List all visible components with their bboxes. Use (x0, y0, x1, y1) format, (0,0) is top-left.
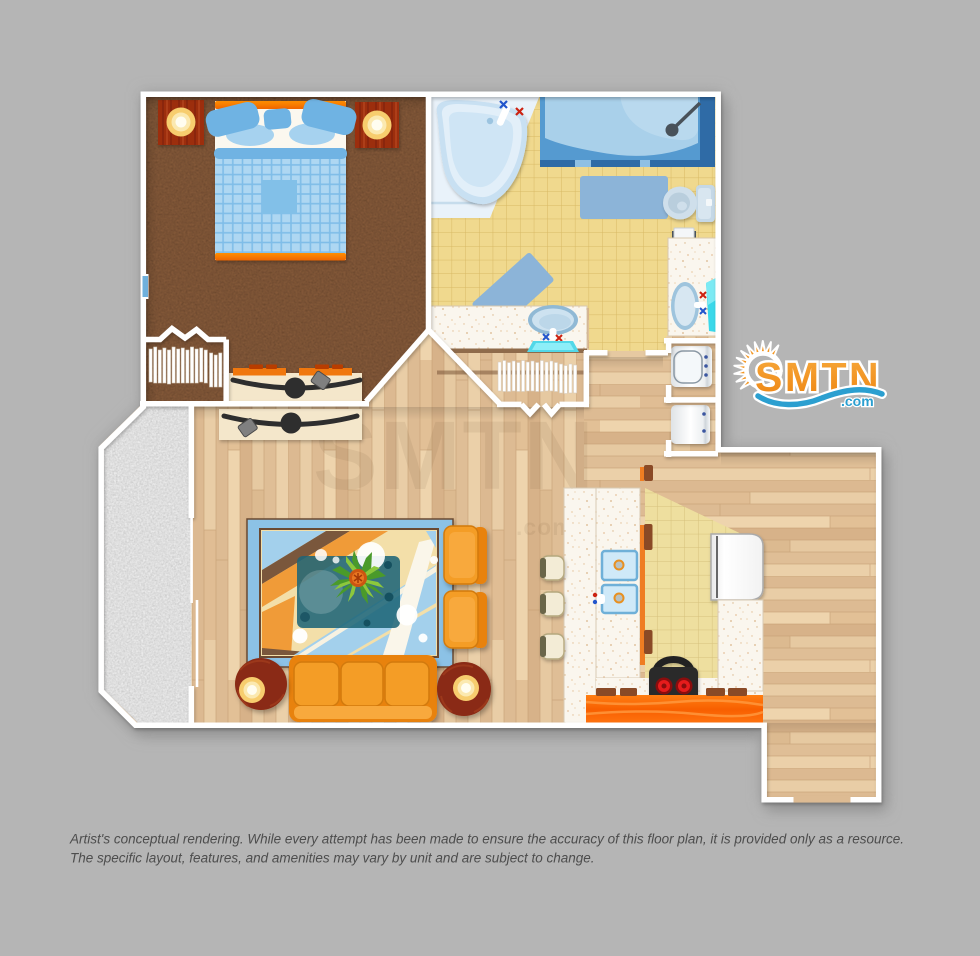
svg-text:The specific layout, features,: The specific layout, features, and ameni… (70, 851, 595, 866)
svg-text:Artist's conceptual rendering.: Artist's conceptual rendering. While eve… (69, 832, 904, 847)
svg-text:.com: .com (841, 393, 874, 409)
